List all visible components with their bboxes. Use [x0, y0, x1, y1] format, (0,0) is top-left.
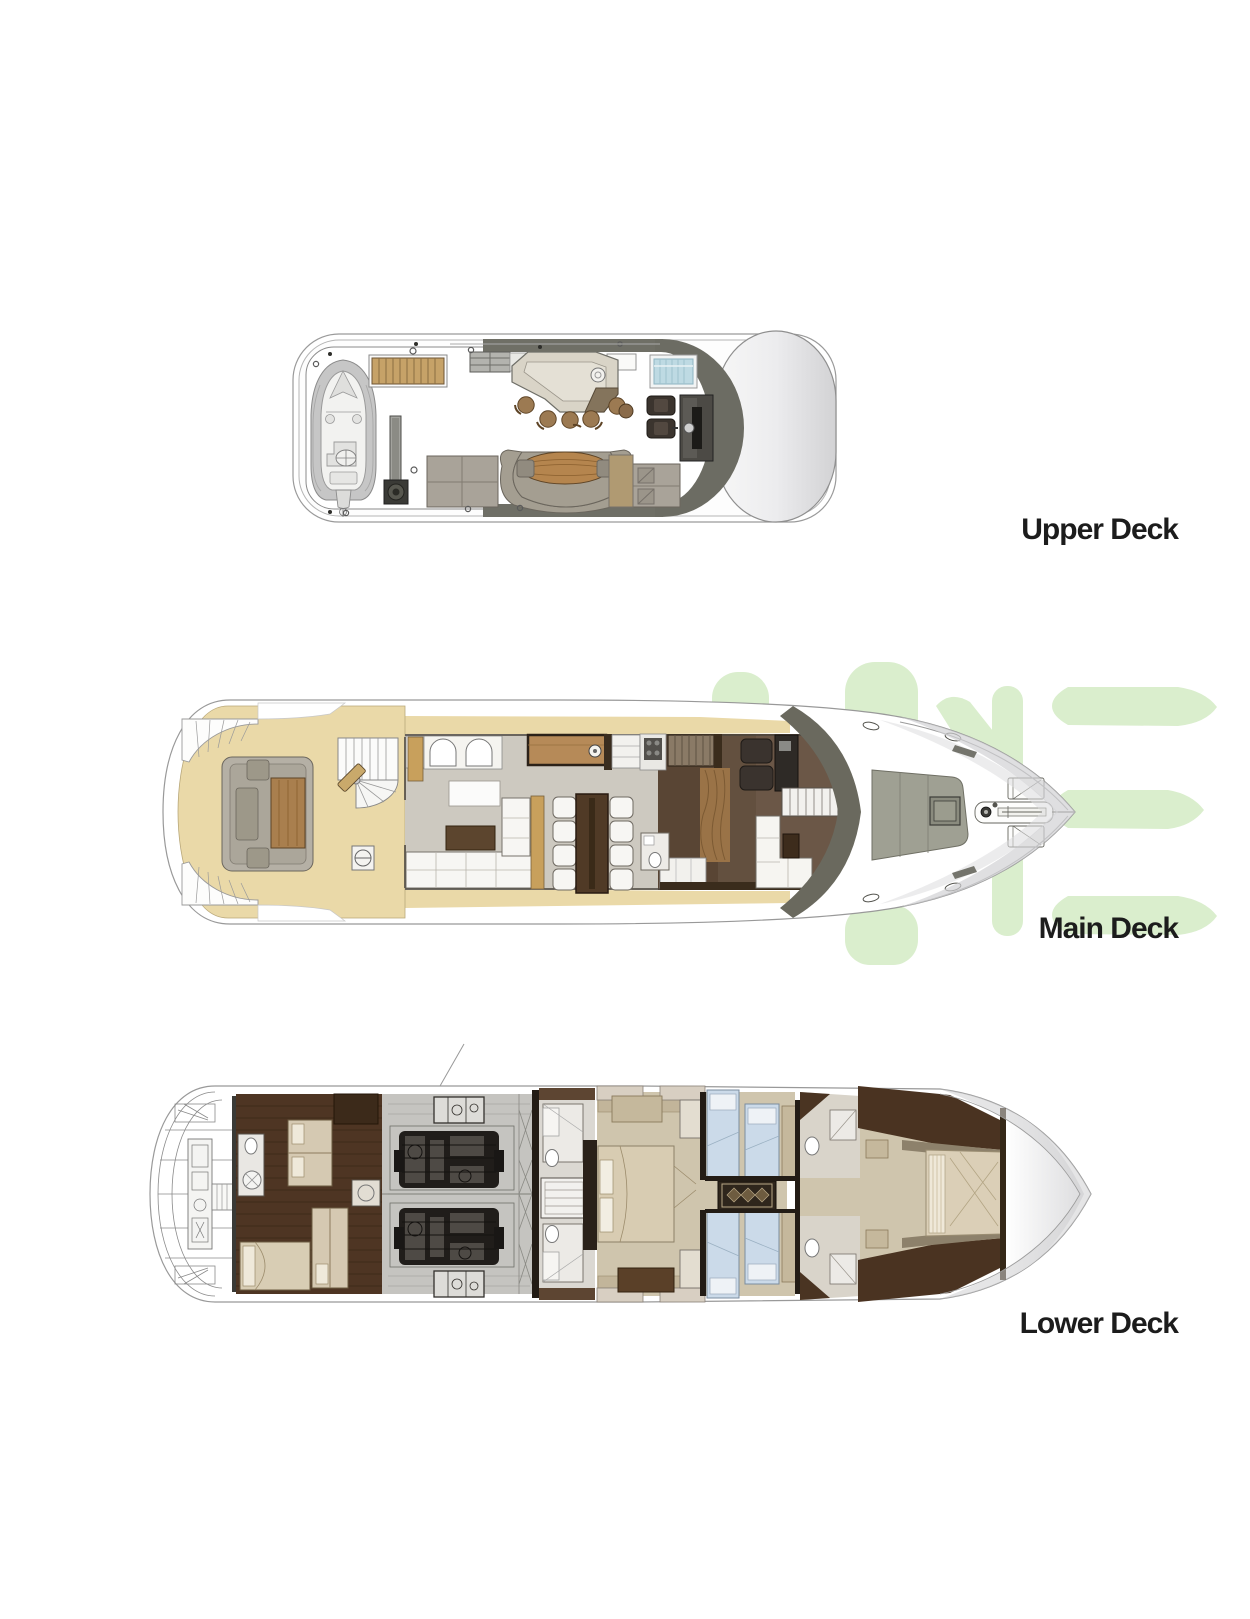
svg-text:Upper Deck: Upper Deck	[1021, 513, 1179, 546]
svg-text:Main Deck: Main Deck	[1039, 912, 1180, 945]
svg-text:Lower Deck: Lower Deck	[1020, 1307, 1180, 1340]
